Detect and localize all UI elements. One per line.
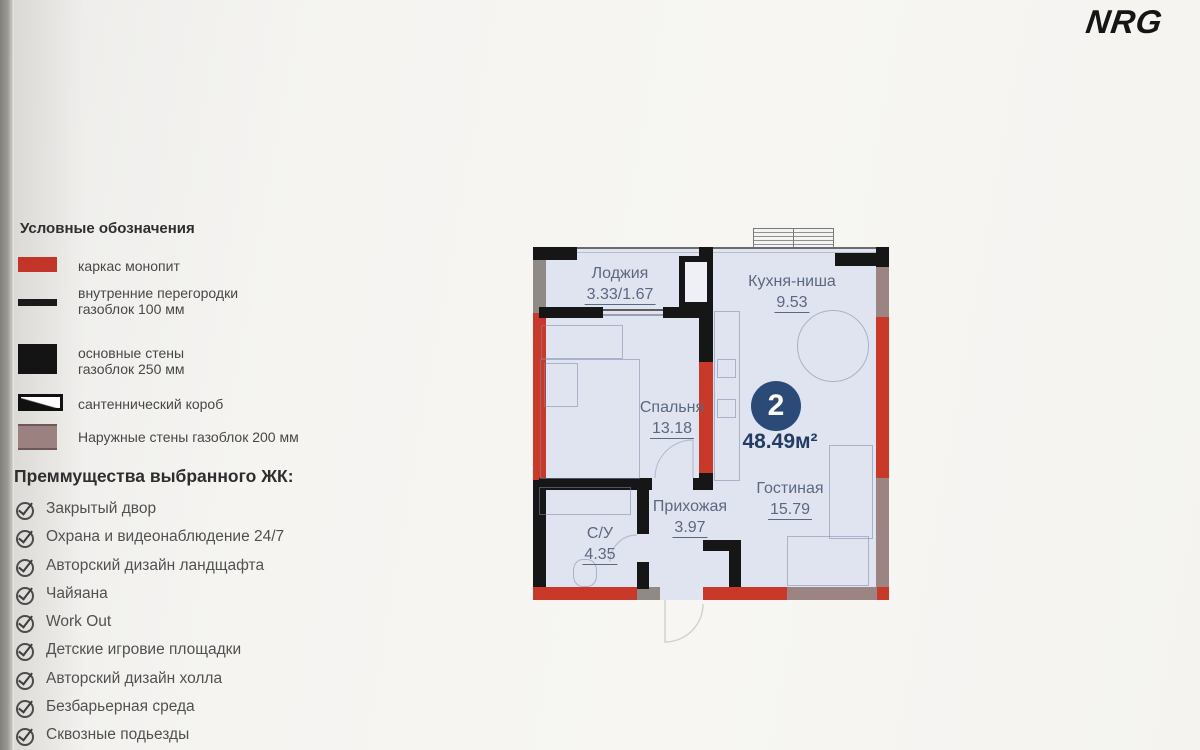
benefit-label: Закрытый двор [46,500,156,517]
circled-checkmark-icon [16,502,34,520]
sink-symbol [717,359,736,378]
room-area: 13.18 [650,420,694,439]
circled-checkmark-icon [16,728,34,746]
wall-segment-frame [699,362,713,473]
pillow-symbol [544,363,578,407]
wardrobe-symbol [541,325,623,359]
legend-label-line1: основные стены [78,345,184,361]
benefits-title: Преммущества выбранного ЖК: [14,466,294,487]
wall-segment-outer [876,267,889,317]
wall-segment [637,490,649,534]
list-item: Детские игровие площадки [16,641,284,669]
red-solid-swatch [18,257,57,272]
entry-door-arc [533,598,889,658]
nrg-logo: NRG [1083,3,1200,45]
wall-segment-outer [787,587,877,600]
benefit-label: Охрана и видеонаблюдение 24/7 [46,528,284,545]
legend-label: сантеннический короб [78,396,223,412]
wall-segment-frame [877,587,889,600]
list-item: Закрытый двор [16,500,284,528]
thin-bar-swatch [18,299,57,306]
wall-segment [533,247,577,260]
list-item: Авторский дизайн ландщафта [16,557,284,585]
room-name: Прихожая [653,498,727,516]
wall-segment-outer [876,478,889,588]
wall-segment [876,247,889,269]
vent-shaft-inner [685,262,707,302]
wall-segment [539,307,603,318]
wall-segment [637,562,649,589]
legend-label: основные стены газоблок 250 мм [78,345,185,377]
circled-checkmark-icon [16,615,34,633]
benefit-label: Детские игровие площадки [46,641,241,658]
room-name: Спальня [640,399,704,417]
room-name: Лоджия [592,265,649,283]
room-area: 15.79 [768,501,812,520]
list-item: Охрана и видеонаблюдение 24/7 [16,528,284,556]
room-name: С/У [587,525,613,543]
black-solid-swatch [18,344,57,374]
circled-checkmark-icon [16,530,34,548]
room-area: 4.35 [582,546,617,565]
wall-segment-frame [533,587,637,600]
benefits-list: Закрытый двор Охрана и видеонаблюдение 2… [16,500,284,750]
floorplan: Лоджия 3.33/1.67 Кухня-ниша 9.53 Спальня… [533,247,889,600]
benefit-label: Чайяана [46,585,108,602]
legend-label: каркас монопит [78,258,180,274]
room-area: 3.97 [672,519,707,538]
list-item: Чайяана [16,585,284,613]
room-area: 3.33/1.67 [585,286,656,305]
room-name: Гостиная [756,480,823,498]
wall-segment [693,478,713,490]
outlined-box-swatch [18,394,63,411]
legend-label-line2: газоблок 250 мм [78,361,185,377]
cabinet-symbol [787,536,869,586]
circled-checkmark-icon [16,700,34,718]
stove-symbol [717,399,736,418]
circled-checkmark-icon [16,643,34,661]
scanned-flyer-page: NRG Условные обозначения каркас монопит … [0,0,1200,750]
wall-segment [729,540,741,587]
benefit-label: Авторский дизайн ландщафта [46,557,264,574]
list-item: Сквозные подьезды [16,726,284,750]
mauve-solid-swatch [18,424,57,450]
window-line [603,314,663,316]
list-item: Work Out [16,613,284,641]
kitchen-counter-symbol [714,311,740,481]
circled-checkmark-icon [16,587,34,605]
list-item: Авторский дизайн холла [16,670,284,698]
circled-checkmark-icon [16,559,34,577]
scan-edge-shadow [0,0,14,750]
benefit-label: Work Out [46,613,111,630]
circled-checkmark-icon [16,672,34,690]
vanity-symbol [539,487,631,515]
legend-title: Условные обозначения [20,220,195,237]
list-item: Безбарьерная среда [16,698,284,726]
legend-label: Наружные стены газоблок 200 мм [78,429,299,445]
rooms-count-badge: 2 [751,381,801,431]
wall-segment [699,309,713,362]
wall-segment-frame [703,587,787,600]
legend-label-line2: газоблок 100 мм [78,301,185,317]
legend-label: внутренние перегородки газоблок 100 мм [78,285,238,317]
room-area: 9.53 [774,294,809,313]
benefit-label: Авторский дизайн холла [46,670,222,687]
benefit-label: Безбарьерная среда [46,698,195,715]
window-line [603,309,663,311]
benefit-label: Сквозные подьезды [46,726,189,743]
dining-table-symbol [797,310,869,382]
room-name: Кухня-ниша [748,273,836,291]
wall-segment-frame [876,317,889,478]
total-area-label: 48.49м² [742,430,817,454]
legend-label-line1: внутренние перегородки [78,285,238,301]
sofa-symbol [829,445,873,539]
